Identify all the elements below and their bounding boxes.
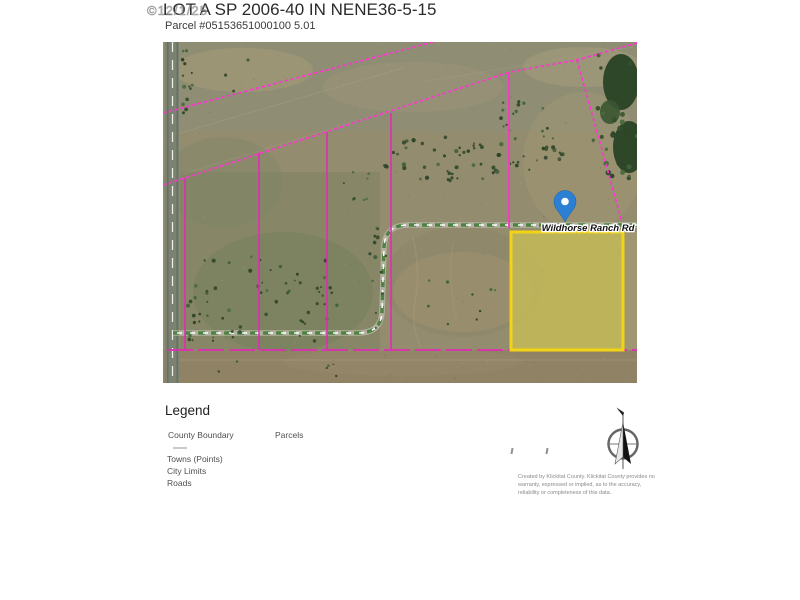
legend-item-roads: Roads — [167, 478, 192, 488]
legend-heading: Legend — [165, 403, 210, 418]
scale-tick-icon — [510, 448, 513, 454]
map-canvas: Wildhorse Ranch Rd — [163, 42, 637, 383]
scale-tick-icon — [545, 448, 548, 454]
county-boundary-swatch-icon — [173, 447, 187, 449]
print-page: ©12/1/25 LOT A SP 2006-40 IN NENE36-5-15… — [0, 0, 800, 600]
disclaimer-line: warranty, expressed or implied, as to th… — [518, 481, 655, 489]
disclaimer-text: Created by Klickitat County. Klickitat C… — [518, 473, 655, 497]
copyright-watermark: ©12/1/25 — [147, 3, 208, 18]
disclaimer-line: reliability or completeness of this data… — [518, 489, 655, 497]
road-label: Wildhorse Ranch Rd — [542, 223, 635, 234]
aerial-map: Wildhorse Ranch Rd — [163, 42, 637, 383]
legend-item-parcels: Parcels — [275, 430, 303, 440]
parcel-subtitle: Parcel #05153651000100 5.01 — [165, 20, 315, 32]
legend-item-towns-points: Towns (Points) — [167, 454, 223, 464]
legend-item-city-limits: City Limits — [167, 466, 206, 476]
selected-parcel — [511, 232, 623, 350]
north-arrow-icon — [600, 406, 646, 478]
disclaimer-line: Created by Klickitat County. Klickitat C… — [518, 473, 655, 481]
legend-item-county-boundary: County Boundary — [168, 430, 234, 440]
